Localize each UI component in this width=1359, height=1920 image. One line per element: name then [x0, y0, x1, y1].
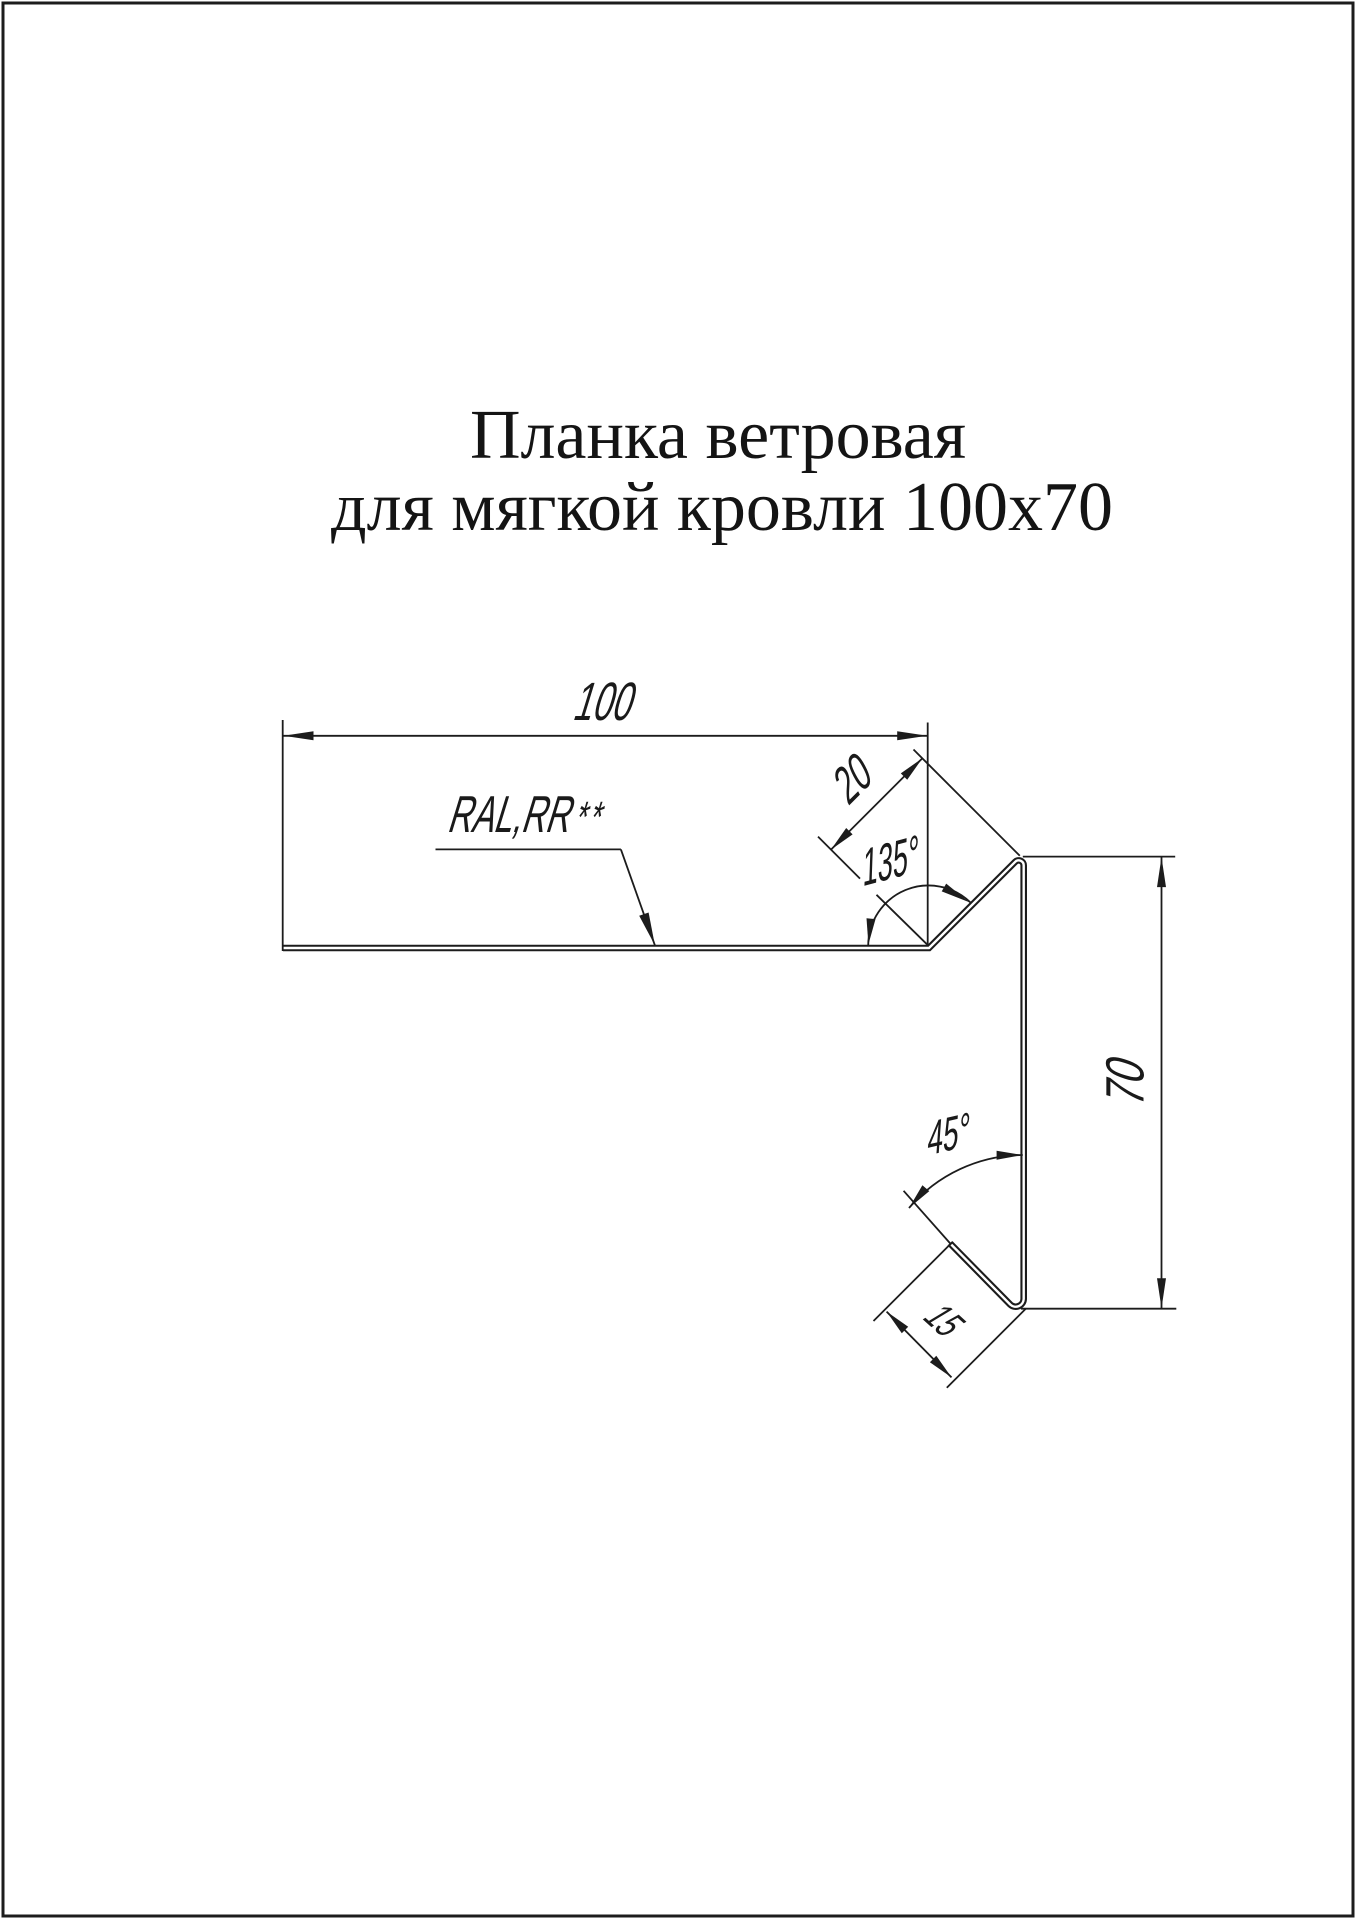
- svg-text:45°: 45°: [926, 1102, 972, 1167]
- svg-text:RAL,RR**: RAL,RR**: [443, 785, 613, 844]
- svg-text:для мягкой кровли 100х70: для мягкой кровли 100х70: [331, 469, 1113, 546]
- svg-text:20: 20: [827, 740, 880, 816]
- svg-text:Планка ветровая: Планка ветровая: [470, 397, 966, 474]
- svg-text:100: 100: [568, 671, 644, 731]
- svg-text:15: 15: [913, 1299, 975, 1343]
- svg-text:70: 70: [1096, 1049, 1155, 1112]
